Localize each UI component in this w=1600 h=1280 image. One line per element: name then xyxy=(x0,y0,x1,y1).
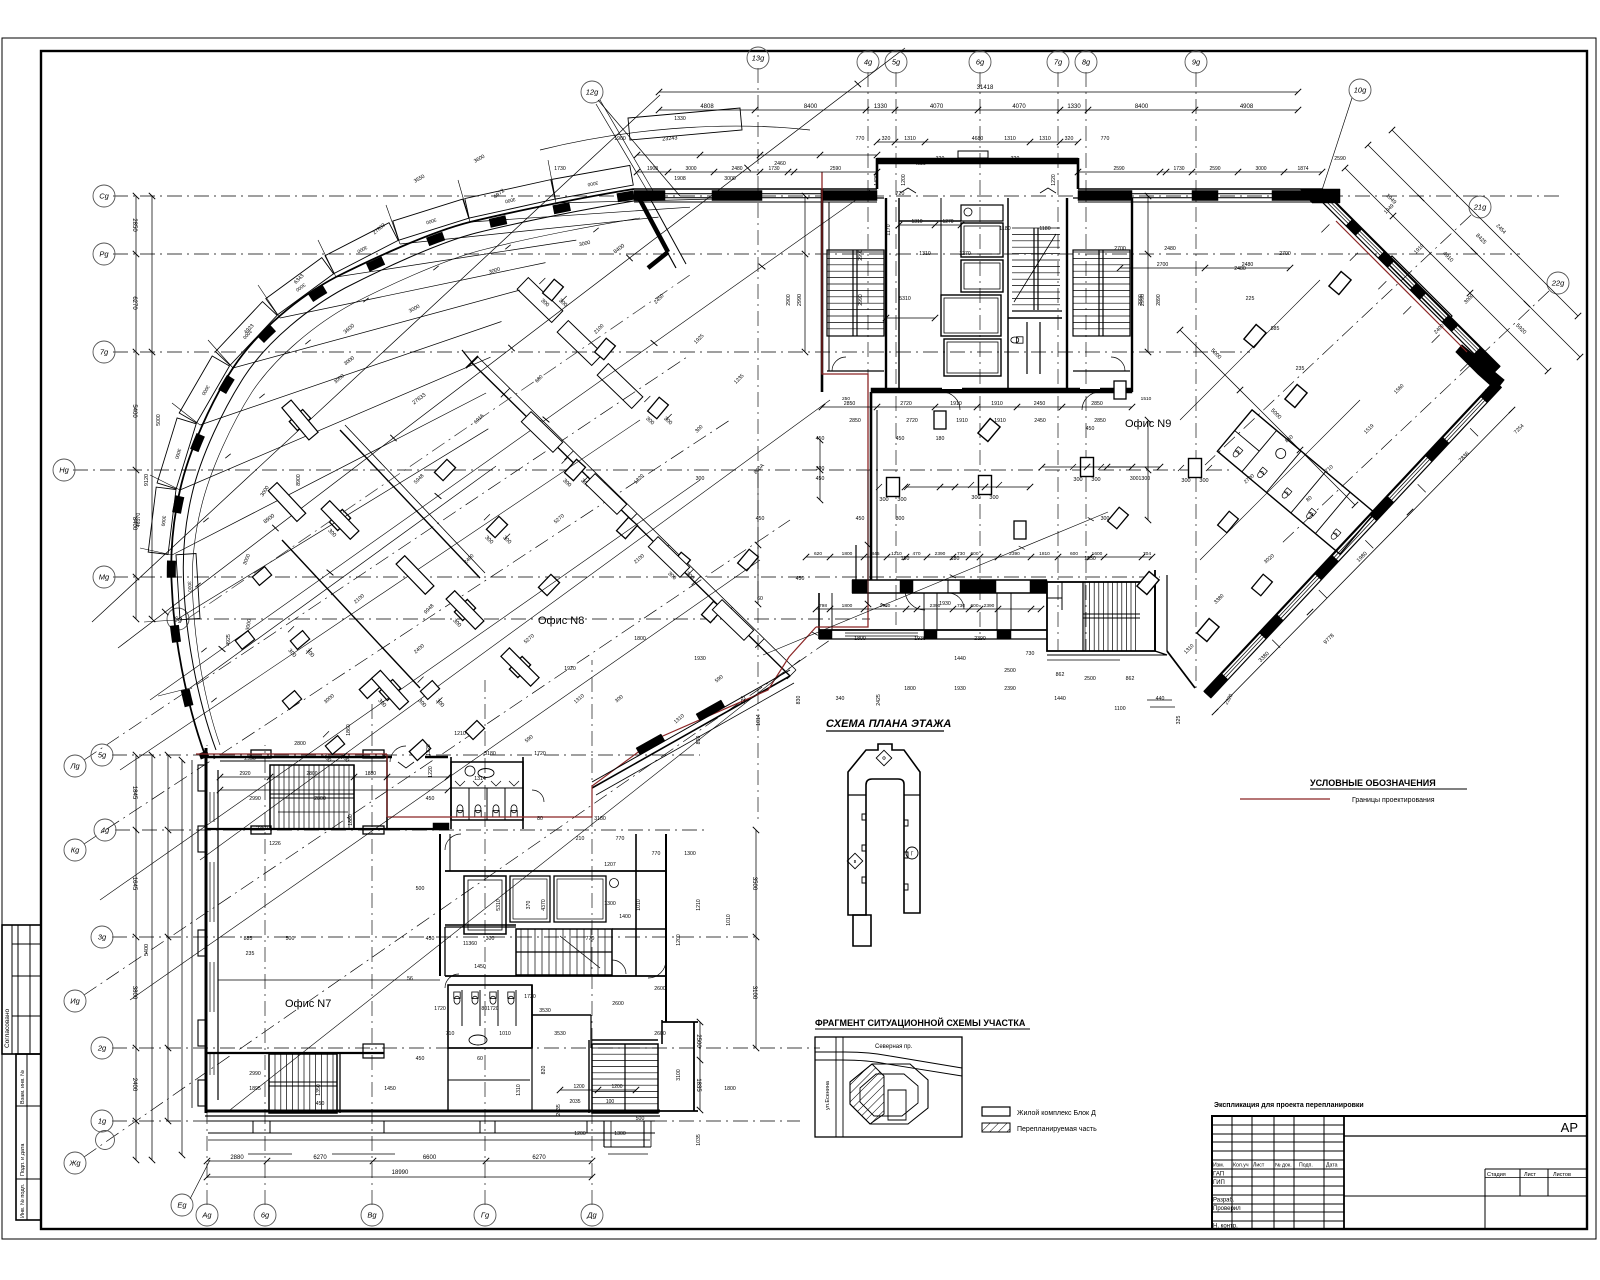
svg-text:6600: 6600 xyxy=(423,1155,437,1161)
svg-text:300: 300 xyxy=(896,516,905,522)
svg-text:Разраб.: Разраб. xyxy=(1213,1198,1235,1204)
svg-text:12g: 12g xyxy=(586,88,599,97)
svg-text:4680: 4680 xyxy=(972,136,984,142)
svg-text:2460: 2460 xyxy=(774,161,786,167)
svg-text:340: 340 xyxy=(836,696,845,702)
svg-text:6g: 6g xyxy=(976,58,985,67)
svg-text:1314: 1314 xyxy=(474,776,486,782)
svg-text:862: 862 xyxy=(1056,672,1065,678)
svg-text:9g: 9g xyxy=(1192,58,1201,67)
svg-text:Кg: Кg xyxy=(71,846,80,855)
svg-text:1908: 1908 xyxy=(674,176,686,182)
svg-text:1200: 1200 xyxy=(573,1084,584,1090)
svg-text:3530: 3530 xyxy=(539,1008,551,1014)
svg-text:1440: 1440 xyxy=(1054,696,1066,702)
svg-text:8400: 8400 xyxy=(804,104,818,110)
svg-text:60: 60 xyxy=(477,1056,483,1062)
svg-text:862: 862 xyxy=(1126,676,1135,682)
svg-text:Ф: Ф xyxy=(882,756,886,762)
svg-text:Мg: Мg xyxy=(99,573,110,582)
svg-text:в: в xyxy=(854,859,857,865)
svg-text:Взам. инв. №: Взам. инв. № xyxy=(20,1070,26,1104)
svg-text:2800: 2800 xyxy=(314,796,326,802)
svg-text:300: 300 xyxy=(486,936,495,942)
svg-text:450: 450 xyxy=(426,796,435,802)
svg-text:1845: 1845 xyxy=(131,786,137,800)
svg-text:4680: 4680 xyxy=(914,161,926,167)
svg-text:1720: 1720 xyxy=(524,994,536,1000)
svg-text:УСЛОВНЫЕ ОБОЗНАЧЕНИЯ: УСЛОВНЫЕ ОБОЗНАЧЕНИЯ xyxy=(1310,778,1436,788)
svg-text:2850: 2850 xyxy=(1091,401,1103,407)
svg-text:300: 300 xyxy=(989,495,998,501)
svg-text:180: 180 xyxy=(951,556,960,562)
svg-text:2425: 2425 xyxy=(876,694,882,706)
svg-text:6270: 6270 xyxy=(131,296,137,310)
svg-text:450: 450 xyxy=(796,576,805,582)
svg-text:1450: 1450 xyxy=(474,964,486,970)
svg-text:2400: 2400 xyxy=(131,1078,137,1092)
svg-text:600: 600 xyxy=(970,603,978,609)
svg-text:Нg: Нg xyxy=(59,466,69,475)
svg-text:№ док.: № док. xyxy=(1275,1163,1292,1169)
svg-text:235: 235 xyxy=(246,951,255,957)
svg-text:300: 300 xyxy=(1073,477,1082,483)
svg-text:9120: 9120 xyxy=(144,474,150,486)
svg-text:Границы проектирования: Границы проектирования xyxy=(1352,797,1435,804)
svg-text:1880: 1880 xyxy=(348,814,354,826)
svg-text:210: 210 xyxy=(576,836,585,842)
svg-text:1210: 1210 xyxy=(454,731,466,737)
svg-text:4908: 4908 xyxy=(1240,104,1254,110)
svg-text:300: 300 xyxy=(1181,478,1190,484)
svg-text:Дата: Дата xyxy=(1326,1163,1338,1169)
svg-text:5g: 5g xyxy=(892,58,901,67)
svg-text:1800: 1800 xyxy=(904,686,916,692)
svg-text:798: 798 xyxy=(819,603,827,609)
svg-text:3100: 3100 xyxy=(751,986,757,1000)
svg-text:1300: 1300 xyxy=(604,901,616,907)
svg-text:21g: 21g xyxy=(1473,203,1487,212)
svg-text:2850: 2850 xyxy=(131,218,137,232)
svg-text:6g: 6g xyxy=(261,1211,270,1220)
svg-text:770: 770 xyxy=(652,851,661,857)
svg-text:704: 704 xyxy=(1143,551,1151,557)
svg-text:5400: 5400 xyxy=(144,944,150,956)
svg-text:1930: 1930 xyxy=(954,686,966,692)
svg-text:1300: 1300 xyxy=(614,1131,626,1137)
svg-text:1910: 1910 xyxy=(994,418,1006,424)
svg-text:2590: 2590 xyxy=(1113,166,1124,172)
svg-text:22g: 22g xyxy=(1551,279,1565,288)
svg-text:3000: 3000 xyxy=(685,166,696,172)
svg-text:180: 180 xyxy=(901,556,910,562)
svg-text:3530: 3530 xyxy=(554,1031,566,1037)
svg-text:325: 325 xyxy=(1176,716,1182,725)
svg-text:1730: 1730 xyxy=(1173,166,1184,172)
svg-text:18990: 18990 xyxy=(392,1170,409,1176)
svg-text:1850: 1850 xyxy=(1084,556,1096,562)
svg-text:1720: 1720 xyxy=(434,1006,446,1012)
svg-text:1226: 1226 xyxy=(269,841,281,847)
svg-text:1270: 1270 xyxy=(942,219,953,225)
svg-text:2480: 2480 xyxy=(1164,246,1176,252)
svg-text:1720: 1720 xyxy=(534,751,546,757)
svg-text:5g: 5g xyxy=(98,751,107,760)
svg-text:2450: 2450 xyxy=(1034,418,1046,424)
svg-text:3180: 3180 xyxy=(484,751,496,757)
svg-text:1930: 1930 xyxy=(914,636,926,642)
svg-text:1010: 1010 xyxy=(499,1031,511,1037)
svg-text:1310: 1310 xyxy=(911,219,922,225)
svg-text:Аg: Аg xyxy=(201,1211,212,1220)
svg-text:1220: 1220 xyxy=(1051,174,1057,186)
svg-text:Лист: Лист xyxy=(1253,1163,1265,1169)
svg-text:235: 235 xyxy=(1296,366,1305,372)
svg-text:Офис N7: Офис N7 xyxy=(285,998,331,1010)
svg-text:АР: АР xyxy=(1561,1120,1578,1135)
svg-text:1200: 1200 xyxy=(611,1084,622,1090)
svg-text:450: 450 xyxy=(896,436,905,442)
svg-text:1300: 1300 xyxy=(684,851,696,857)
svg-text:2500: 2500 xyxy=(1084,676,1096,682)
svg-text:1310: 1310 xyxy=(1004,136,1016,142)
svg-text:2590: 2590 xyxy=(1209,166,1220,172)
svg-text:620: 620 xyxy=(814,551,822,557)
svg-text:300: 300 xyxy=(1199,478,1208,484)
svg-text:2450: 2450 xyxy=(1034,401,1046,407)
svg-text:770: 770 xyxy=(1101,136,1110,142)
svg-text:300: 300 xyxy=(696,476,705,482)
svg-text:1210: 1210 xyxy=(696,899,702,911)
svg-text:1930: 1930 xyxy=(694,656,706,662)
svg-text:2880: 2880 xyxy=(230,1155,244,1161)
svg-text:Жg: Жg xyxy=(68,1159,81,1168)
svg-text:2920: 2920 xyxy=(239,771,250,777)
svg-text:3100: 3100 xyxy=(676,1069,682,1081)
svg-text:1645: 1645 xyxy=(131,877,137,891)
svg-text:Сg: Сg xyxy=(99,192,109,201)
svg-text:100: 100 xyxy=(606,1099,615,1105)
svg-text:Инв. № подл.: Инв. № подл. xyxy=(20,1183,26,1218)
svg-text:2390: 2390 xyxy=(1004,686,1016,692)
svg-text:1180: 1180 xyxy=(999,226,1010,232)
svg-text:320: 320 xyxy=(936,156,945,162)
svg-text:13g: 13g xyxy=(752,54,765,63)
svg-text:2720: 2720 xyxy=(906,418,918,424)
svg-text:Перепланируемая часть: Перепланируемая часть xyxy=(1017,1126,1097,1133)
svg-text:80: 80 xyxy=(537,816,543,822)
svg-text:3000: 3000 xyxy=(186,581,193,592)
svg-text:2035: 2035 xyxy=(556,1104,562,1116)
svg-text:10g: 10g xyxy=(1354,86,1367,95)
svg-text:1330: 1330 xyxy=(874,104,888,110)
svg-text:1835: 1835 xyxy=(695,1078,701,1092)
svg-text:2390: 2390 xyxy=(1009,551,1020,557)
svg-text:5310: 5310 xyxy=(899,296,911,302)
svg-text:440: 440 xyxy=(1156,696,1165,702)
svg-text:770: 770 xyxy=(586,936,595,942)
svg-text:5310: 5310 xyxy=(496,899,502,911)
svg-text:2600: 2600 xyxy=(654,986,666,992)
svg-text:2350: 2350 xyxy=(256,826,268,832)
svg-text:2590: 2590 xyxy=(1334,156,1346,162)
svg-text:4070: 4070 xyxy=(1012,104,1026,110)
svg-text:1200: 1200 xyxy=(901,174,907,186)
svg-text:1730: 1730 xyxy=(554,166,566,172)
svg-text:885: 885 xyxy=(1271,326,1280,332)
svg-text:2600: 2600 xyxy=(612,1001,624,1007)
svg-text:801720: 801720 xyxy=(481,1006,498,1012)
svg-text:2035: 2035 xyxy=(569,1099,580,1105)
svg-text:500: 500 xyxy=(286,936,295,942)
svg-text:450: 450 xyxy=(856,516,865,522)
svg-text:450: 450 xyxy=(1086,426,1095,432)
svg-text:4070: 4070 xyxy=(930,104,944,110)
svg-text:450: 450 xyxy=(426,936,435,942)
svg-text:1910: 1910 xyxy=(956,418,968,424)
svg-text:Иg: Иg xyxy=(70,997,80,1006)
svg-text:2990: 2990 xyxy=(1138,294,1144,306)
svg-text:2900: 2900 xyxy=(786,294,792,306)
svg-text:1910: 1910 xyxy=(991,401,1003,407)
svg-text:2500: 2500 xyxy=(1004,668,1016,674)
svg-text:Изм.: Изм. xyxy=(1213,1163,1224,1169)
svg-text:1310: 1310 xyxy=(904,136,916,142)
svg-text:7g: 7g xyxy=(100,348,109,357)
svg-text:770: 770 xyxy=(616,836,625,842)
svg-text:1874: 1874 xyxy=(1297,166,1308,172)
svg-text:1920: 1920 xyxy=(564,666,576,672)
svg-text:6270: 6270 xyxy=(313,1155,327,1161)
svg-text:ул.Есенина: ул.Есенина xyxy=(825,1080,831,1110)
svg-text:2990: 2990 xyxy=(797,294,803,306)
svg-text:Экспликация для проекта перепл: Экспликация для проекта перепланировки xyxy=(1214,1102,1364,1109)
svg-text:1860: 1860 xyxy=(346,724,352,736)
svg-text:1930: 1930 xyxy=(939,601,951,607)
svg-text:2800: 2800 xyxy=(294,741,306,747)
svg-text:600: 600 xyxy=(1070,551,1078,557)
svg-text:885: 885 xyxy=(244,936,253,942)
svg-text:2850: 2850 xyxy=(1094,418,1106,424)
svg-text:6270: 6270 xyxy=(532,1155,546,1161)
svg-text:46570: 46570 xyxy=(136,513,142,528)
svg-text:7g: 7g xyxy=(1054,58,1063,67)
svg-text:180: 180 xyxy=(936,436,945,442)
svg-text:Рg: Рg xyxy=(99,250,109,259)
svg-text:2700: 2700 xyxy=(1279,251,1291,257)
svg-text:56: 56 xyxy=(407,976,413,982)
svg-text:1g: 1g xyxy=(98,1117,107,1126)
svg-text:Еg: Еg xyxy=(177,1201,187,1210)
svg-text:1400: 1400 xyxy=(619,914,631,920)
svg-text:2800: 2800 xyxy=(306,771,317,777)
svg-text:1895: 1895 xyxy=(249,1086,261,1092)
svg-text:2720: 2720 xyxy=(900,401,912,407)
svg-text:4g: 4g xyxy=(864,58,873,67)
svg-text:1330: 1330 xyxy=(1067,104,1081,110)
svg-text:1035: 1035 xyxy=(696,1134,702,1146)
svg-text:1910: 1910 xyxy=(950,401,962,407)
svg-text:8900: 8900 xyxy=(296,474,302,486)
svg-text:Гg: Гg xyxy=(481,1211,490,1220)
svg-text:Вg: Вg xyxy=(367,1211,377,1220)
svg-text:2990: 2990 xyxy=(858,294,864,306)
svg-text:1880: 1880 xyxy=(365,771,376,777)
svg-text:4g: 4g xyxy=(101,826,110,835)
svg-text:300: 300 xyxy=(879,497,888,503)
svg-text:Северная пр.: Северная пр. xyxy=(875,1044,913,1050)
svg-text:1800: 1800 xyxy=(854,636,866,642)
svg-text:1310: 1310 xyxy=(919,251,931,257)
svg-text:Г: Г xyxy=(911,852,914,858)
svg-text:1800: 1800 xyxy=(842,551,853,557)
svg-text:8g: 8g xyxy=(1082,58,1091,67)
svg-text:2700: 2700 xyxy=(1157,262,1169,268)
svg-text:1170: 1170 xyxy=(886,224,892,235)
svg-text:1420: 1420 xyxy=(874,174,880,186)
svg-text:500: 500 xyxy=(636,1116,645,1122)
svg-text:1207: 1207 xyxy=(604,862,616,868)
svg-text:470: 470 xyxy=(912,551,920,557)
svg-text:2990: 2990 xyxy=(858,249,864,261)
svg-text:3000: 3000 xyxy=(1255,166,1266,172)
svg-text:31418: 31418 xyxy=(977,85,994,91)
svg-text:Н. контр.: Н. контр. xyxy=(1213,1224,1238,1230)
svg-text:5000: 5000 xyxy=(156,414,162,426)
svg-text:ФРАГМЕНТ СИТУАЦИОННОЙ СХЕМЫ: ФРАГМЕНТ СИТУАЦИОННОЙ СХЕМЫ УЧАСТКА xyxy=(815,1017,1026,1028)
svg-text:ГИП: ГИП xyxy=(1213,1180,1225,1186)
svg-text:300: 300 xyxy=(971,495,980,501)
svg-text:2590: 2590 xyxy=(830,166,841,172)
svg-text:4925: 4925 xyxy=(226,634,232,646)
svg-text:1310: 1310 xyxy=(1039,136,1051,142)
svg-text:2480: 2480 xyxy=(1242,262,1254,268)
svg-text:11360: 11360 xyxy=(463,941,477,947)
svg-text:1014: 1014 xyxy=(756,714,762,726)
svg-text:1010: 1010 xyxy=(726,914,732,926)
svg-text:2390: 2390 xyxy=(935,551,946,557)
svg-text:Подп. и дата: Подп. и дата xyxy=(20,1143,26,1176)
svg-text:3500: 3500 xyxy=(751,877,757,891)
svg-text:250: 250 xyxy=(842,396,850,402)
svg-text:2700: 2700 xyxy=(1114,246,1126,252)
svg-text:1220: 1220 xyxy=(428,766,434,778)
svg-text:1510: 1510 xyxy=(1141,396,1152,402)
svg-text:1330: 1330 xyxy=(674,116,686,122)
svg-text:3001300: 3001300 xyxy=(1130,476,1150,482)
svg-text:3180: 3180 xyxy=(594,816,606,822)
svg-text:1200: 1200 xyxy=(676,934,682,946)
svg-text:1270: 1270 xyxy=(959,251,971,257)
svg-text:770: 770 xyxy=(856,136,865,142)
svg-text:2990: 2990 xyxy=(249,796,261,802)
svg-text:2500: 2500 xyxy=(695,1034,701,1048)
svg-text:2930: 2930 xyxy=(244,756,256,762)
svg-text:845: 845 xyxy=(871,551,879,557)
svg-text:1900: 1900 xyxy=(614,136,626,142)
svg-text:Офис N8: Офис N8 xyxy=(538,615,584,627)
svg-text:1800: 1800 xyxy=(842,603,853,609)
svg-text:730: 730 xyxy=(1026,651,1035,657)
svg-text:500: 500 xyxy=(416,886,425,892)
svg-text:830: 830 xyxy=(796,696,802,705)
svg-text:8400: 8400 xyxy=(1135,104,1149,110)
svg-text:4808: 4808 xyxy=(700,104,714,110)
svg-text:Подп.: Подп. xyxy=(1299,1163,1313,1169)
svg-text:2990: 2990 xyxy=(249,1071,261,1077)
svg-text:Согласовано: Согласовано xyxy=(4,1009,11,1048)
svg-text:320: 320 xyxy=(882,136,891,142)
svg-text:370: 370 xyxy=(526,901,532,910)
svg-text:1810: 1810 xyxy=(1039,551,1050,557)
svg-text:СХЕМА ПЛАНА ЭТАЖА: СХЕМА ПЛАНА ЭТАЖА xyxy=(826,718,951,730)
svg-text:2390: 2390 xyxy=(974,636,986,642)
svg-text:2890: 2890 xyxy=(1156,294,1162,306)
svg-text:Лg: Лg xyxy=(69,762,80,771)
svg-text:720: 720 xyxy=(896,191,905,197)
svg-text:300: 300 xyxy=(1091,477,1100,483)
svg-text:4370: 4370 xyxy=(541,899,547,911)
svg-text:710: 710 xyxy=(446,1031,455,1037)
svg-text:3800: 3800 xyxy=(131,986,137,1000)
svg-text:2600: 2600 xyxy=(654,1031,666,1037)
svg-text:450: 450 xyxy=(416,1056,425,1062)
svg-text:1200: 1200 xyxy=(574,1131,586,1137)
svg-text:Проверил: Проверил xyxy=(1213,1206,1241,1212)
svg-text:3g: 3g xyxy=(98,933,107,942)
svg-text:2390: 2390 xyxy=(984,603,995,609)
svg-text:3000: 3000 xyxy=(724,176,736,182)
svg-text:820: 820 xyxy=(541,1066,547,1075)
svg-text:600: 600 xyxy=(970,551,978,557)
svg-text:ГАП: ГАП xyxy=(1213,1172,1224,1178)
svg-text:2g: 2g xyxy=(97,1044,107,1053)
svg-text:1100: 1100 xyxy=(1114,706,1125,712)
svg-text:2850: 2850 xyxy=(849,418,861,424)
svg-text:Жилой комплекс Блок Д: Жилой комплекс Блок Д xyxy=(1017,1109,1096,1117)
svg-text:320: 320 xyxy=(1011,156,1020,162)
svg-text:Кол.уч: Кол.уч xyxy=(1233,1163,1249,1169)
svg-text:1800: 1800 xyxy=(724,1086,736,1092)
svg-text:1220: 1220 xyxy=(426,744,432,756)
svg-text:1180: 1180 xyxy=(1039,226,1050,232)
svg-text:225: 225 xyxy=(1246,296,1255,302)
svg-text:1010: 1010 xyxy=(636,899,642,911)
svg-text:1450: 1450 xyxy=(384,1086,396,1092)
svg-text:450: 450 xyxy=(316,1101,325,1107)
svg-text:1310: 1310 xyxy=(516,1084,522,1096)
svg-text:1440: 1440 xyxy=(954,656,966,662)
svg-text:5400: 5400 xyxy=(131,404,137,418)
svg-text:2480: 2480 xyxy=(731,166,742,172)
svg-text:320: 320 xyxy=(1065,136,1074,142)
svg-text:450: 450 xyxy=(756,516,765,522)
svg-text:Дg: Дg xyxy=(586,1211,597,1220)
svg-text:300: 300 xyxy=(897,497,906,503)
